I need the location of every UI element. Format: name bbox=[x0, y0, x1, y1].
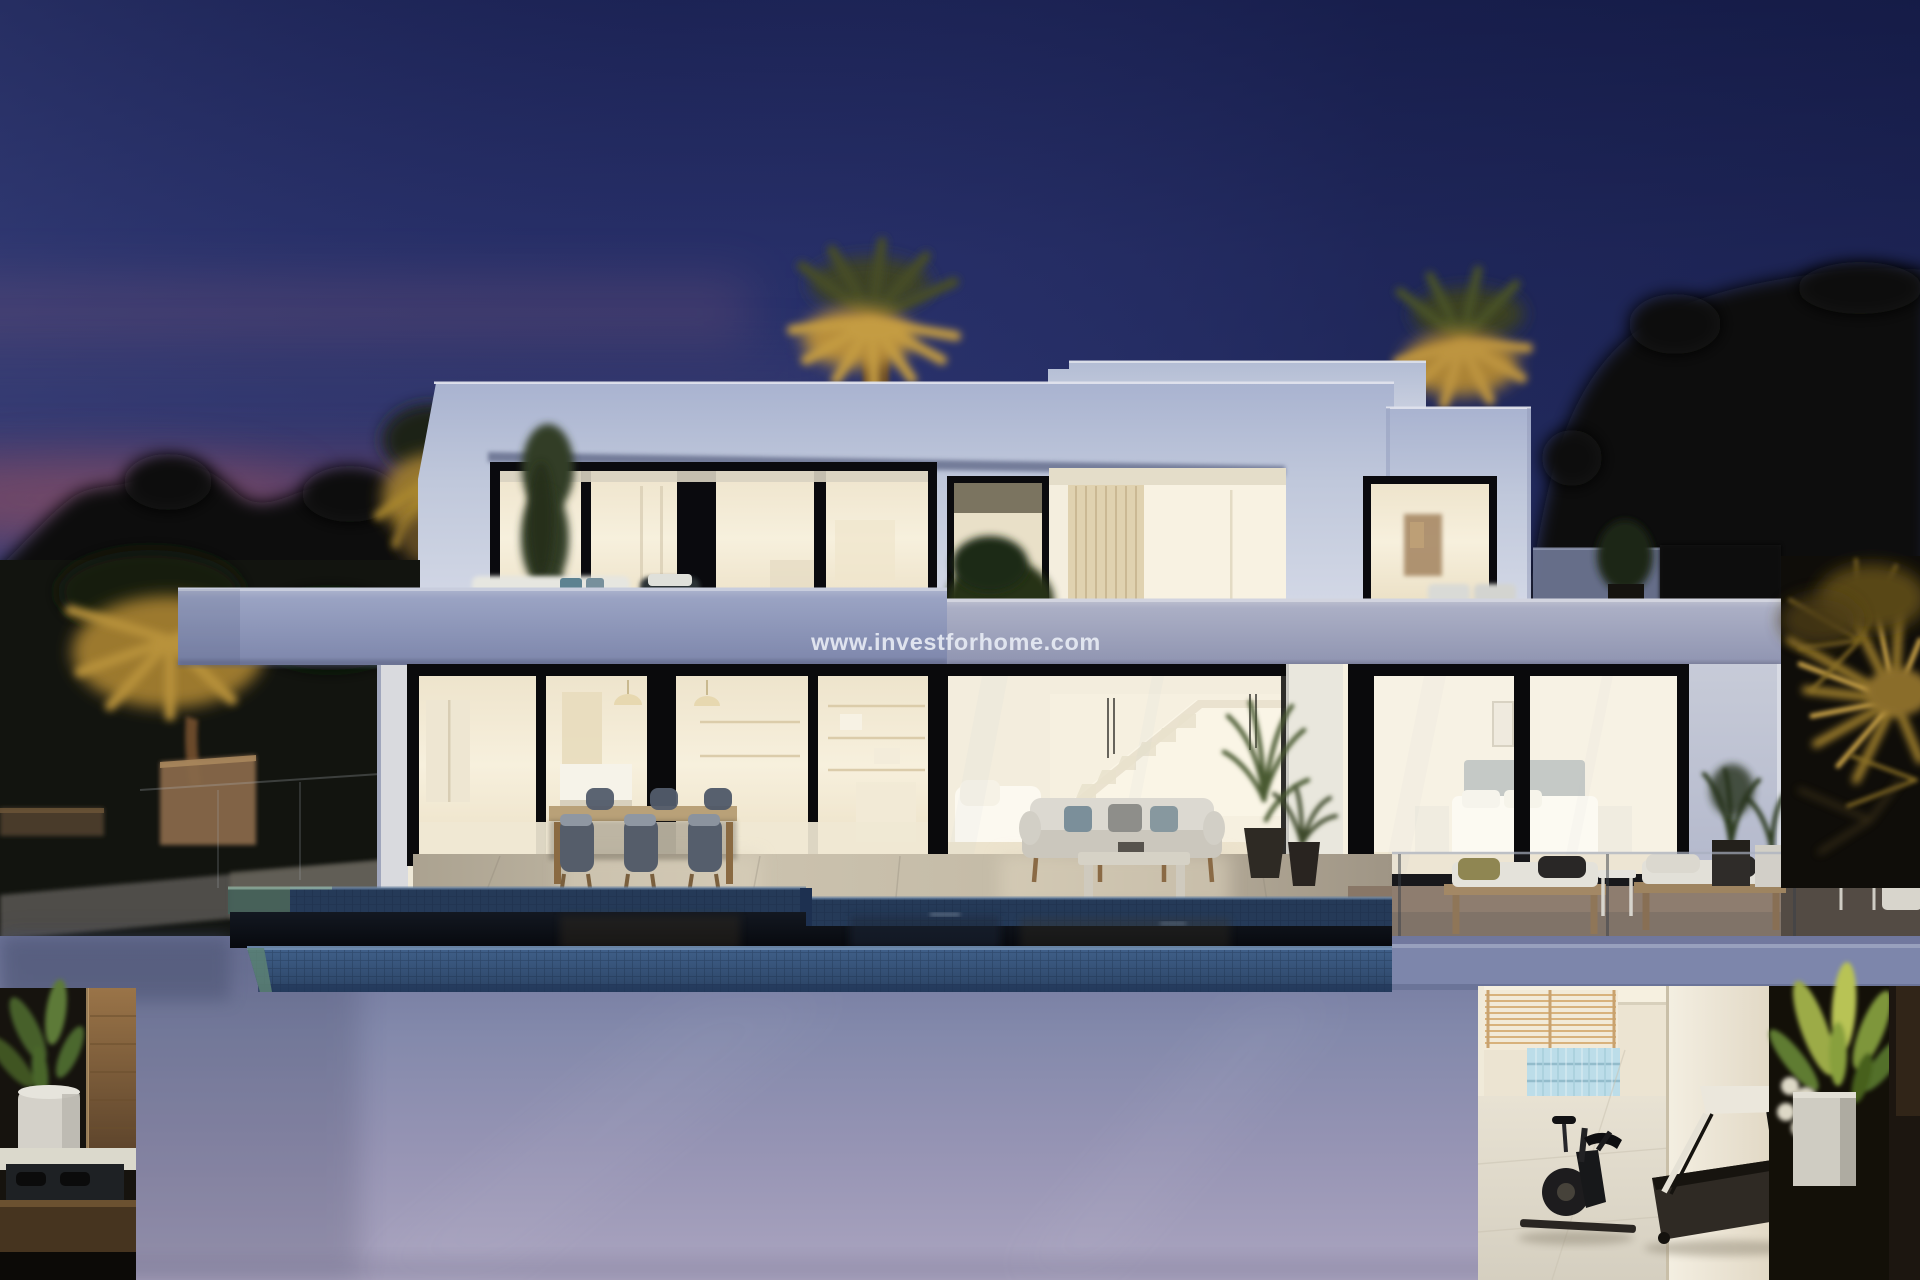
svg-text:www.investforhome.com: www.investforhome.com bbox=[810, 629, 1101, 655]
